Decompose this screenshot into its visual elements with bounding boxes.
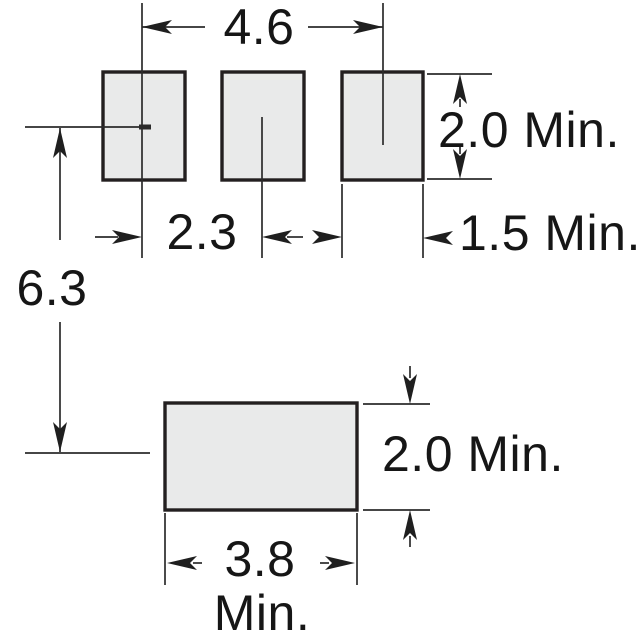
arrowhead-1-5-right <box>423 231 453 245</box>
arrowhead-1-5-left <box>312 230 342 244</box>
dim-bottom-pad-height: 2.0 Min. <box>363 366 564 547</box>
dim-label-row-spacing: 6.3 <box>16 260 87 316</box>
pads <box>103 72 423 510</box>
bottom-pad <box>165 403 357 510</box>
arrowhead-bottom-height-down <box>403 374 417 404</box>
arrowhead-3-8-left <box>167 556 197 570</box>
arrowhead-3-8-right <box>325 556 355 570</box>
dim-label-top-pad-height: 2.0 Min. <box>438 102 620 158</box>
dim-pad-width: 1.5 Min. <box>312 184 640 261</box>
arrowhead-bottom-height-up <box>403 510 417 540</box>
dim-label-pad-width: 1.5 Min. <box>459 205 640 261</box>
top-pad-center <box>222 72 304 180</box>
dim-top-pad-height: 2.0 Min. <box>427 74 620 179</box>
dim-label-pad-pitch: 2.3 <box>166 204 237 260</box>
dim-label-bottom-pad-height: 2.0 Min. <box>382 426 564 482</box>
dim-label-bottom-pad-width-unit: Min. <box>214 585 310 640</box>
land-pattern-dimension-drawing: 4.6 2.0 Min. 2.3 1.5 Min. 6.3 <box>0 0 640 640</box>
dim-label-overall-pitch: 4.6 <box>223 0 294 55</box>
dim-bottom-pad-width: 3.8 Min. <box>165 513 357 640</box>
dim-label-bottom-pad-width: 3.8 <box>224 531 295 587</box>
dim-pad-pitch: 2.3 <box>95 204 303 260</box>
dim-overall-pitch: 4.6 <box>142 0 383 55</box>
